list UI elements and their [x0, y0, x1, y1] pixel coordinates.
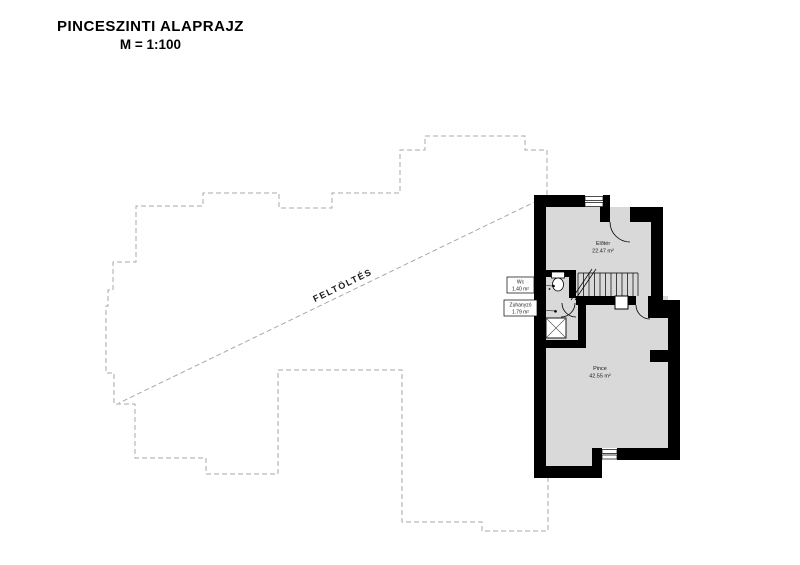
floor-plan-svg: FELTÖLTÉS — [0, 0, 800, 565]
drawing-sheet: PINCESZINTI ALAPRAJZ M = 1:100 FELTÖLTÉS — [0, 0, 800, 565]
feltoltes-label: FELTÖLTÉS — [311, 267, 374, 304]
svg-text:Zuhanyzó: Zuhanyzó — [510, 303, 532, 309]
wall-right-upper — [651, 210, 663, 303]
wall-right-lower — [668, 318, 680, 460]
wall-right-chunk — [648, 300, 680, 318]
svg-text:1.40 m²: 1.40 m² — [512, 287, 529, 293]
wall-top-a — [534, 195, 585, 207]
wall-bottom-right — [617, 448, 680, 460]
svg-text:Wc: Wc — [517, 280, 525, 286]
shower-tray-icon — [546, 318, 566, 338]
svg-text:42.55 m²: 42.55 m² — [589, 374, 611, 380]
top-window-symbol — [585, 195, 603, 207]
bottom-window-symbol — [602, 448, 617, 460]
svg-text:22.47 m²: 22.47 m² — [592, 249, 614, 255]
wall-pilaster — [650, 350, 668, 362]
flue-block — [615, 296, 628, 309]
wall-stair-bottom — [576, 296, 618, 305]
svg-text:Pince: Pince — [593, 366, 607, 372]
ground-floor-outline — [106, 136, 548, 531]
svg-text:Előtér: Előtér — [596, 241, 611, 247]
floor-doorway — [610, 207, 630, 222]
fill-boundary-line — [119, 197, 545, 403]
wall-stair-bottom-b — [628, 296, 636, 305]
wall-bottom-left — [534, 466, 602, 478]
svg-text:1.79 m²: 1.79 m² — [512, 310, 529, 316]
wall-left — [534, 195, 546, 478]
wall-shower-bottom — [546, 340, 586, 348]
